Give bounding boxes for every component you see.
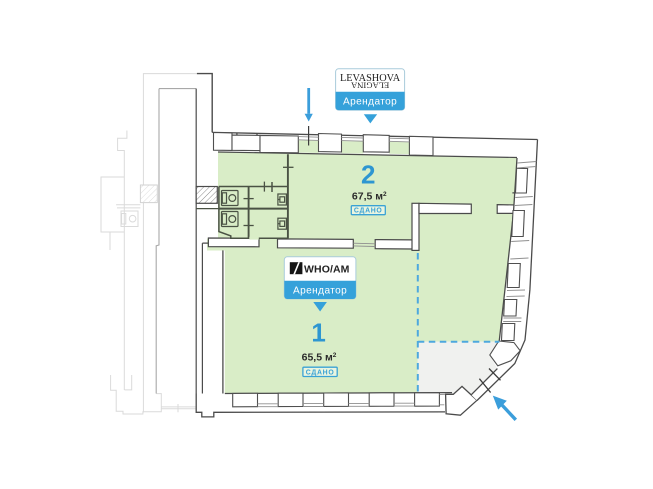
svg-text:1: 1 — [311, 318, 325, 348]
svg-text:Арендатор: Арендатор — [293, 286, 347, 297]
svg-text:СДАНО: СДАНО — [306, 369, 335, 376]
svg-text:WHO/AM: WHO/AM — [304, 264, 350, 276]
svg-text:ELAGINA: ELAGINA — [350, 81, 389, 91]
svg-text:СДАНО: СДАНО — [354, 208, 383, 215]
svg-text:67,5 м2: 67,5 м2 — [352, 190, 387, 202]
svg-text:2: 2 — [361, 160, 375, 190]
svg-text:Арендатор: Арендатор — [343, 97, 397, 108]
svg-text:65,5 м2: 65,5 м2 — [302, 351, 337, 363]
